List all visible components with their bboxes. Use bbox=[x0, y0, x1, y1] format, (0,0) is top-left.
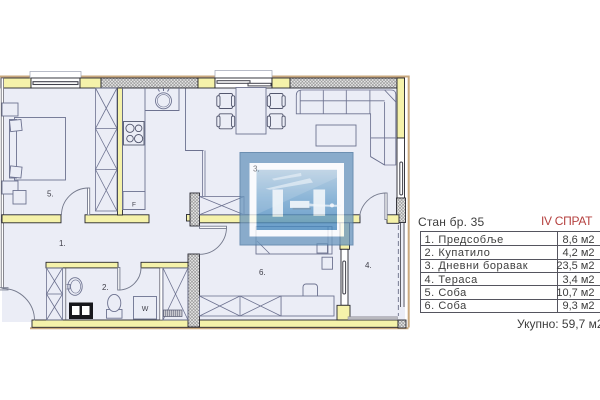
svg-text:1.: 1. bbox=[59, 239, 66, 248]
svg-text:F: F bbox=[132, 202, 136, 209]
svg-text:2.: 2. bbox=[102, 283, 109, 292]
svg-text:6.: 6. bbox=[259, 268, 266, 277]
svg-text:5.: 5. bbox=[47, 190, 54, 199]
svg-text:W: W bbox=[142, 306, 149, 313]
svg-text:4.: 4. bbox=[365, 261, 372, 270]
svg-text:3.: 3. bbox=[253, 165, 260, 174]
